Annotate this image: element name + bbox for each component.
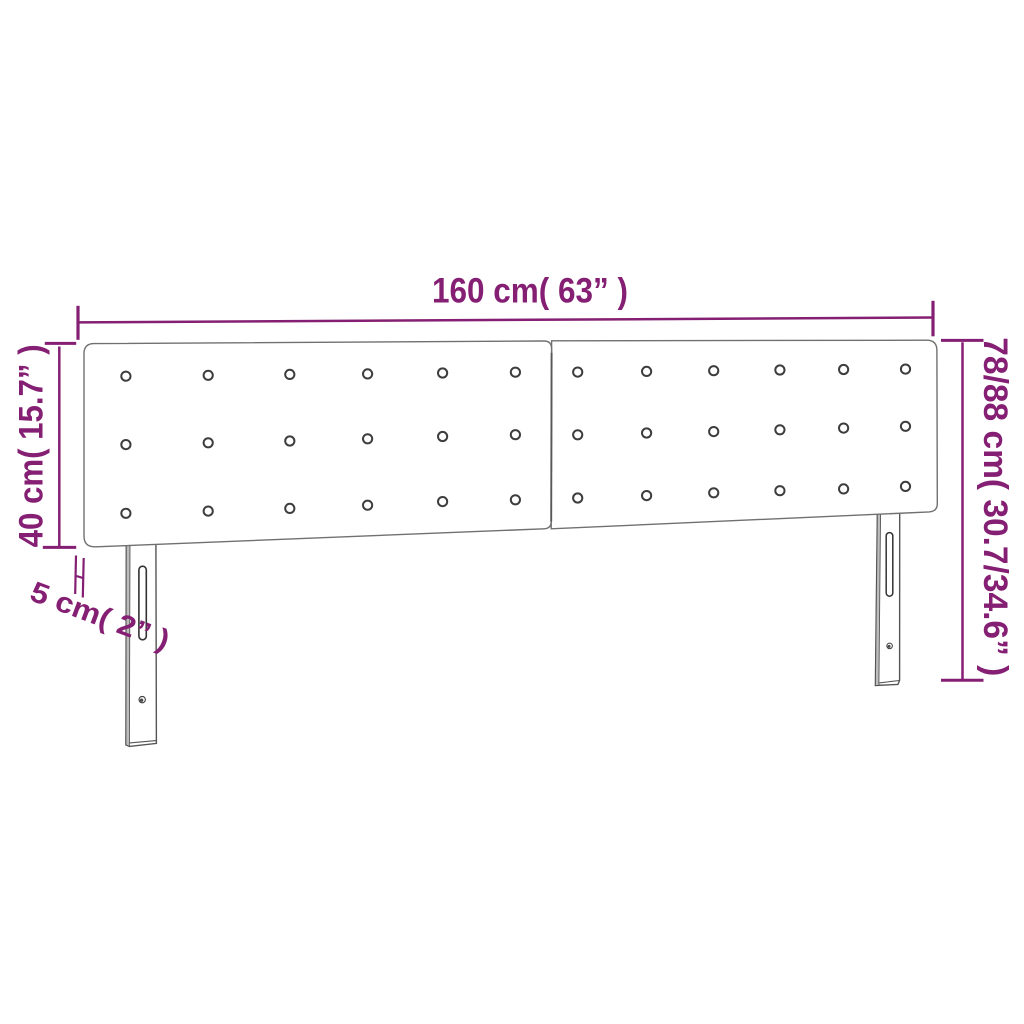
svg-text:40 cm( 15.7” ): 40 cm( 15.7” ): [13, 344, 51, 547]
svg-text:78/88 cm( 30.7/34.6” ): 78/88 cm( 30.7/34.6” ): [976, 337, 1014, 676]
svg-text:160 cm( 63” ): 160 cm( 63” ): [432, 272, 628, 311]
